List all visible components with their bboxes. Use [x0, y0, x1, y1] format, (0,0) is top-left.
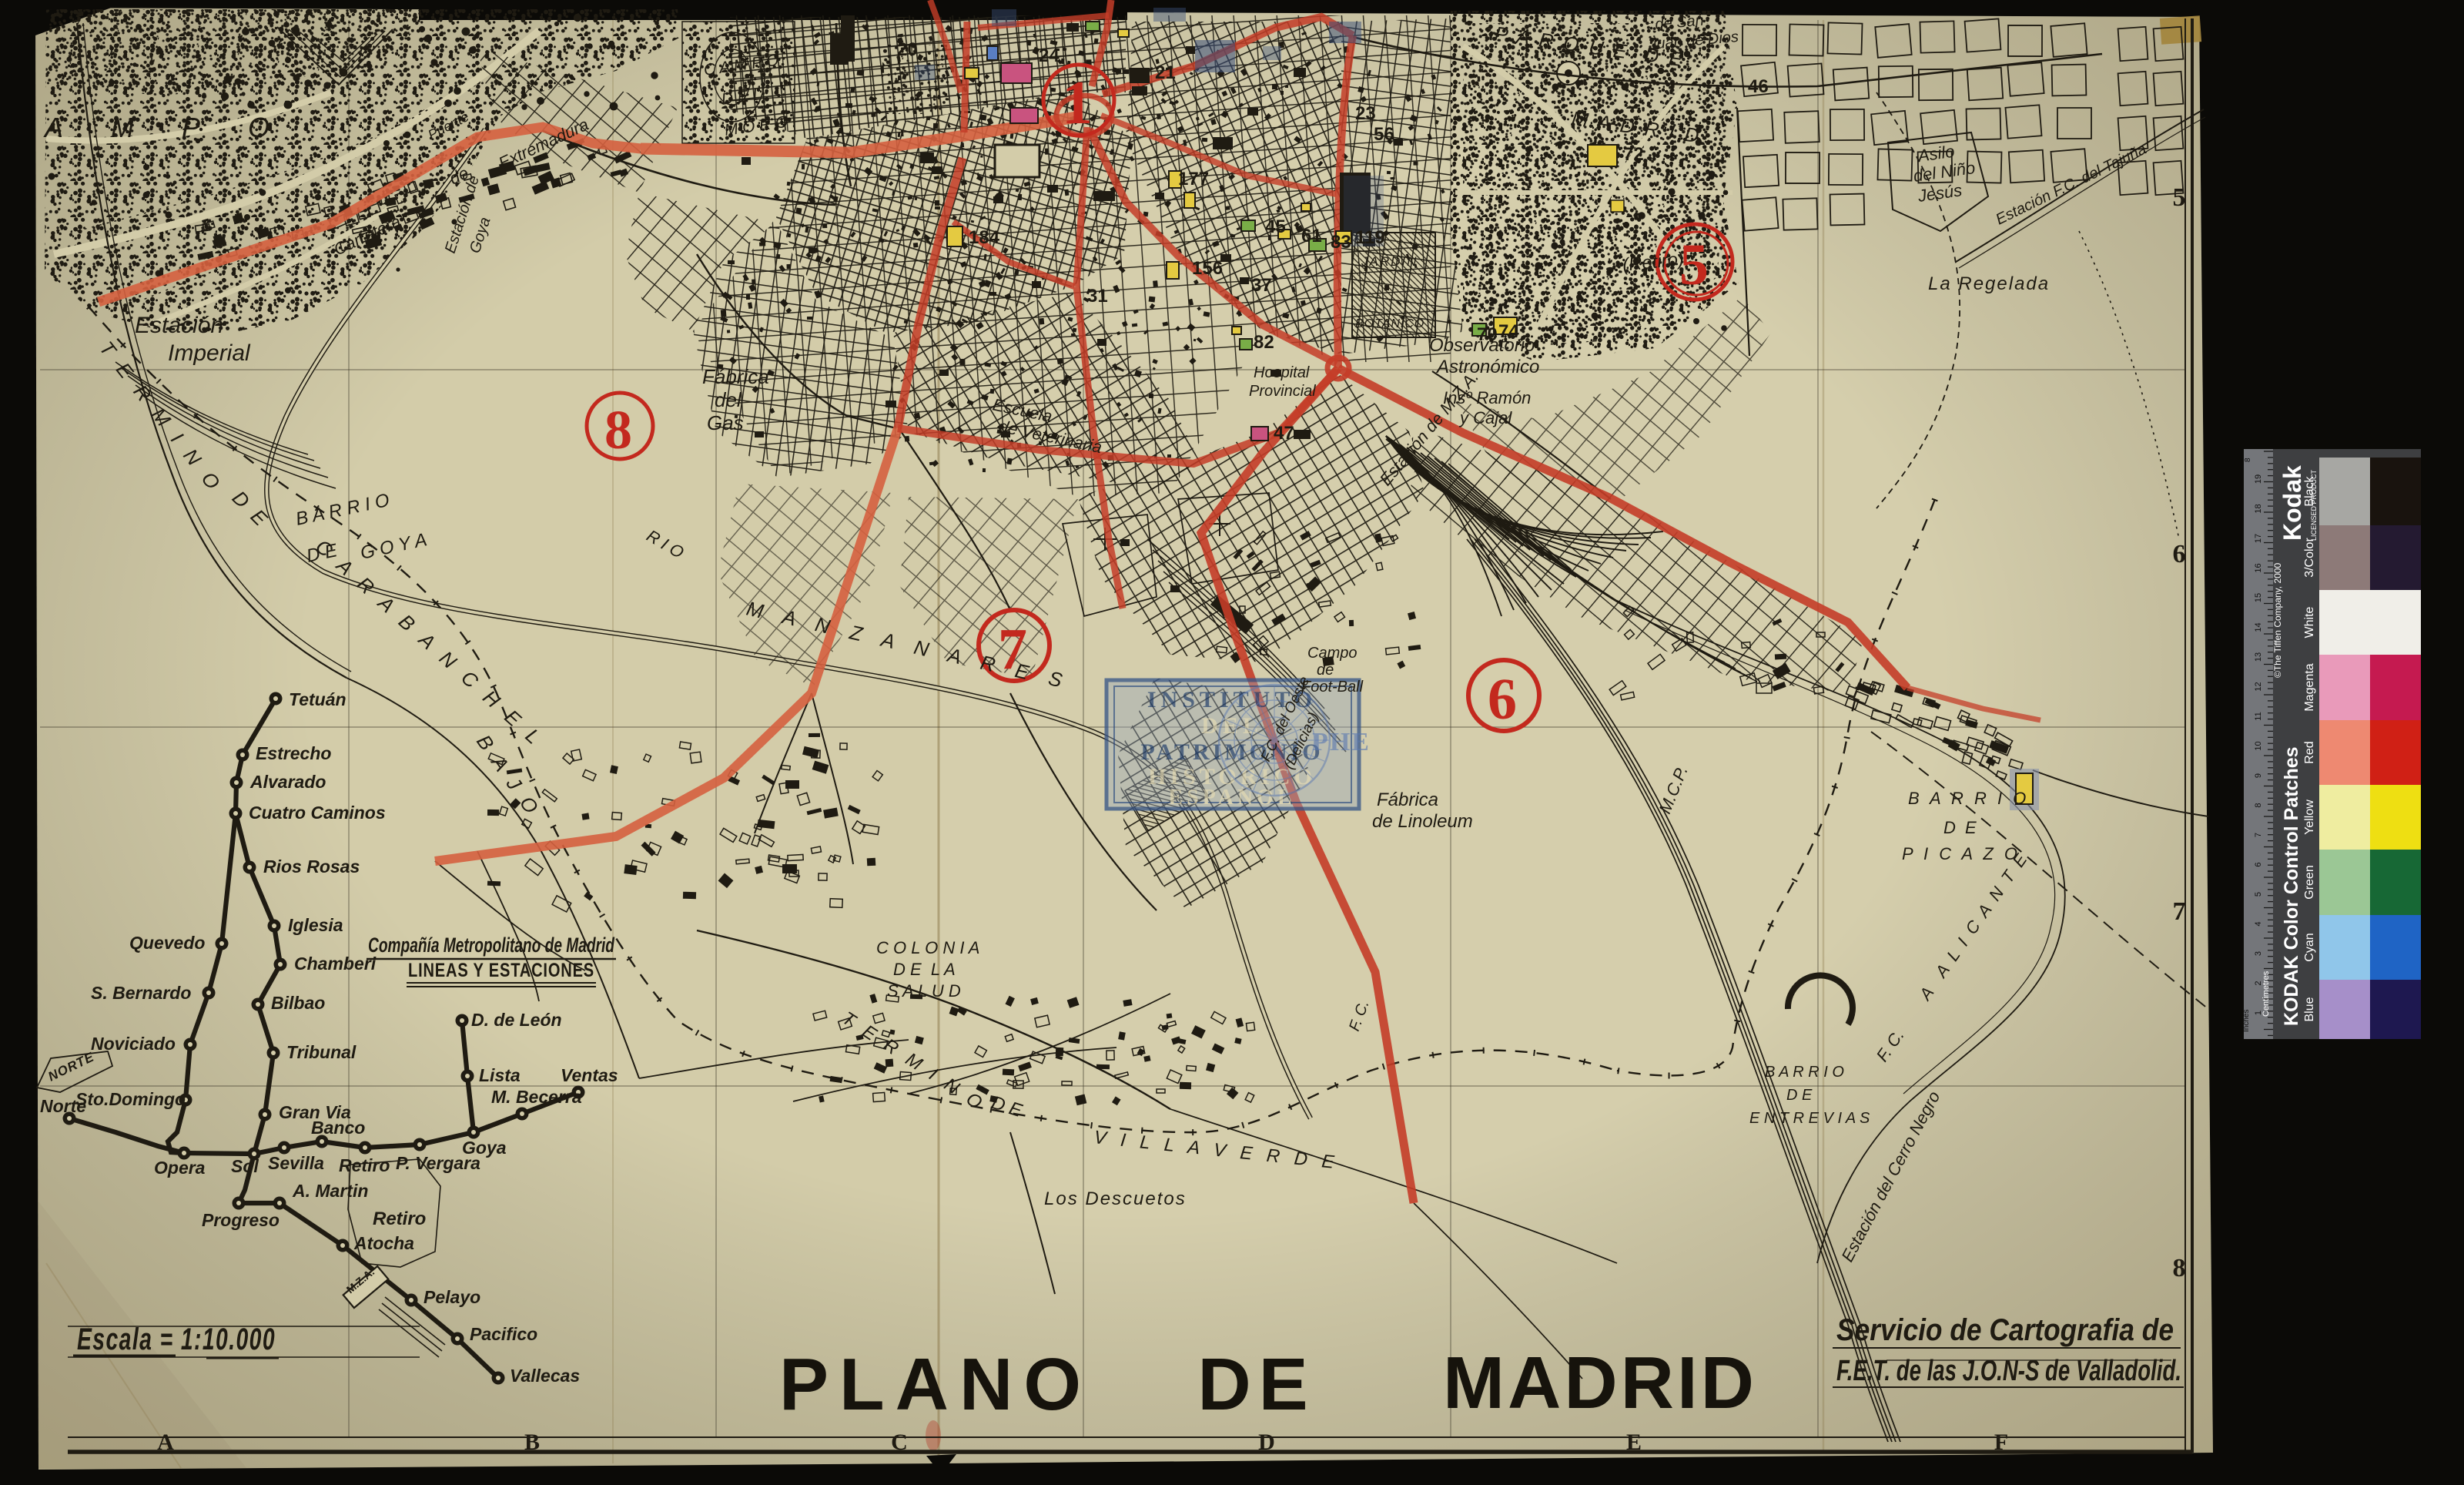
svg-text:de: de	[1317, 662, 1334, 679]
svg-text:D E: D E	[1786, 1087, 1813, 1104]
svg-text:20: 20	[897, 39, 918, 60]
svg-text:Yellow: Yellow	[2303, 799, 2316, 835]
svg-text:6: 6	[1488, 667, 1517, 732]
svg-text:47: 47	[1274, 423, 1294, 444]
svg-text:10: 10	[2254, 741, 2263, 750]
svg-text:83: 83	[1331, 232, 1351, 253]
svg-text:31: 31	[1087, 286, 1108, 307]
svg-text:Cuatro Caminos: Cuatro Caminos	[249, 803, 386, 823]
svg-text:Escala = 1:10.000: Escala = 1:10.000	[77, 1322, 276, 1356]
svg-text:Goya: Goya	[462, 1138, 507, 1158]
svg-text:Sevilla: Sevilla	[268, 1153, 324, 1173]
svg-text:Iglesia: Iglesia	[288, 915, 343, 935]
svg-text:B A R R I O: B A R R I O	[1765, 1064, 1844, 1081]
svg-text:5: 5	[2254, 892, 2263, 897]
svg-text:Astronómico: Astronómico	[1435, 357, 1539, 377]
svg-text:Banco: Banco	[311, 1118, 365, 1138]
svg-text:Kodak: Kodak	[2278, 465, 2306, 541]
svg-text:Norte: Norte	[40, 1096, 86, 1116]
svg-text:Estrecho: Estrecho	[256, 743, 331, 763]
svg-text:Chamberi: Chamberi	[294, 954, 377, 974]
svg-text:D E L A: D E L A	[893, 960, 956, 979]
svg-text:Fábrica: Fábrica	[1377, 789, 1438, 810]
svg-text:3/Color: 3/Color	[2303, 538, 2316, 578]
svg-text:C: C	[891, 1430, 908, 1455]
svg-text:A. Martin: A. Martin	[292, 1181, 368, 1201]
svg-text:DEL: DEL	[1201, 713, 1263, 739]
svg-text:Estación: Estación	[135, 313, 223, 338]
svg-text:Pacifico: Pacifico	[470, 1324, 537, 1344]
svg-text:A: A	[157, 1430, 174, 1455]
svg-text:Green: Green	[2303, 865, 2316, 899]
svg-text:Compañía Metropolitano de Madr: Compañía Metropolitano de Madrid	[368, 934, 614, 957]
svg-text:Hospital: Hospital	[1254, 364, 1310, 381]
svg-text:56: 56	[1374, 124, 1394, 145]
svg-text:Sto.Domingo: Sto.Domingo	[75, 1089, 186, 1109]
svg-text:Servicio de Cartografia de: Servicio de Cartografia de	[1836, 1313, 2174, 1347]
svg-text:DE: DE	[1197, 1343, 1315, 1426]
svg-text:Pelayo: Pelayo	[423, 1287, 480, 1307]
svg-text:Noviciado: Noviciado	[91, 1034, 176, 1054]
svg-text:PHE: PHE	[1312, 728, 1371, 756]
svg-text:Quevedo: Quevedo	[129, 933, 205, 953]
svg-text:Gas: Gas	[707, 411, 744, 434]
svg-text:C O L O N I A: C O L O N I A	[876, 938, 979, 957]
svg-text:Alvarado: Alvarado	[249, 772, 326, 792]
svg-text:12: 12	[2254, 682, 2263, 691]
svg-text:D E: D E	[1943, 818, 1979, 837]
svg-text:24: 24	[1039, 45, 1060, 66]
svg-text:KODAK Color Control Patches: KODAK Color Control Patches	[2281, 746, 2302, 1026]
svg-text:E: E	[1626, 1430, 1642, 1455]
svg-text:23: 23	[1355, 103, 1376, 124]
svg-text:D: D	[1258, 1430, 1275, 1455]
svg-text:ESPAÑOL: ESPAÑOL	[1168, 786, 1295, 810]
svg-text:16: 16	[2254, 563, 2263, 572]
svg-text:LINEAS Y ESTACIONES: LINEAS Y ESTACIONES	[408, 960, 594, 981]
svg-text:184: 184	[969, 227, 1000, 248]
svg-text:Provincial: Provincial	[1249, 383, 1316, 400]
svg-text:3: 3	[2254, 951, 2263, 956]
svg-text:8: 8	[2173, 1254, 2186, 1282]
svg-text:Inches: Inches	[2242, 1010, 2251, 1032]
svg-text:8: 8	[604, 399, 632, 461]
svg-text:Opera: Opera	[154, 1158, 206, 1178]
svg-text:Bilbao: Bilbao	[271, 993, 325, 1013]
svg-text:S. Bernardo: S. Bernardo	[91, 983, 191, 1003]
svg-text:7: 7	[2254, 833, 2263, 837]
svg-text:Ventas: Ventas	[561, 1065, 618, 1085]
svg-text:La Regelada: La Regelada	[1928, 273, 2050, 294]
svg-text:Vallecas: Vallecas	[510, 1366, 580, 1386]
svg-text:Tribunal: Tribunal	[286, 1042, 357, 1062]
svg-text:8: 8	[2254, 803, 2263, 807]
svg-text:Red: Red	[2303, 741, 2316, 763]
svg-text:156: 156	[1192, 258, 1223, 279]
svg-text:de Linoleum: de Linoleum	[1372, 811, 1473, 832]
svg-text:15: 15	[2254, 593, 2263, 602]
svg-text:M. Becerra: M. Becerra	[491, 1087, 582, 1107]
svg-text:6: 6	[2254, 862, 2263, 867]
svg-text:46: 46	[1748, 76, 1769, 97]
svg-text:©The Tiffen Company, 2000: ©The Tiffen Company, 2000	[2272, 563, 2283, 678]
svg-text:Retiro: Retiro	[373, 1208, 426, 1229]
svg-text:19: 19	[2254, 474, 2263, 484]
svg-text:Fábrica: Fábrica	[702, 365, 769, 388]
svg-text:White: White	[2303, 606, 2316, 638]
svg-text:MADRID: MADRID	[1443, 1342, 1757, 1424]
svg-text:Magenta: Magenta	[2303, 663, 2316, 711]
svg-text:45: 45	[1265, 216, 1286, 237]
svg-text:4: 4	[2254, 921, 2263, 926]
svg-text:21: 21	[1155, 62, 1176, 83]
svg-text:Campo: Campo	[1307, 645, 1357, 662]
svg-text:Tetuán: Tetuán	[289, 689, 346, 709]
svg-text:7: 7	[2173, 897, 2186, 926]
svg-text:y Cajal: y Cajal	[1458, 408, 1512, 427]
svg-text:11: 11	[2254, 712, 2263, 720]
svg-text:119: 119	[1355, 227, 1385, 248]
svg-text:Atocha: Atocha	[353, 1233, 414, 1253]
svg-text:6: 6	[2173, 540, 2186, 568]
svg-text:Observatorio: Observatorio	[1429, 335, 1535, 356]
svg-text:F.E.T. de las J.O.N-S de Valla: F.E.T. de las J.O.N-S de Valladolid.	[1836, 1355, 2181, 1387]
svg-text:72: 72	[1623, 144, 1644, 165]
svg-text:Cyan: Cyan	[2303, 933, 2316, 961]
svg-text:PLANO: PLANO	[779, 1343, 1092, 1426]
svg-text:E N T R E V I A S: E N T R E V I A S	[1749, 1110, 1870, 1127]
svg-text:S A L U D: S A L U D	[887, 981, 961, 1001]
svg-text:D. de León: D. de León	[471, 1010, 562, 1030]
svg-text:Progreso: Progreso	[202, 1210, 280, 1230]
svg-text:18: 18	[2254, 504, 2263, 513]
svg-text:Los Descuetos: Los Descuetos	[1044, 1188, 1187, 1209]
svg-text:Rios Rosas: Rios Rosas	[263, 856, 360, 877]
svg-text:Blue: Blue	[2303, 997, 2316, 1021]
svg-text:9: 9	[2254, 773, 2263, 778]
svg-text:B: B	[524, 1430, 540, 1455]
svg-text:37: 37	[1251, 275, 1272, 296]
svg-text:F: F	[1994, 1430, 2008, 1455]
svg-text:Sol: Sol	[231, 1156, 259, 1176]
svg-text:177: 177	[1178, 169, 1209, 189]
svg-text:del: del	[715, 388, 742, 411]
svg-text:14: 14	[2254, 622, 2263, 632]
svg-text:82: 82	[1254, 332, 1274, 353]
svg-text:Centimetres: Centimetres	[2261, 970, 2271, 1017]
svg-text:Lista: Lista	[479, 1065, 521, 1085]
svg-text:5: 5	[2173, 183, 2186, 212]
svg-text:P I C A Z O: P I C A Z O	[1902, 844, 2020, 863]
svg-text:Retiro: Retiro	[339, 1155, 390, 1175]
svg-text:61: 61	[1301, 226, 1322, 246]
svg-text:8: 8	[2244, 458, 2252, 462]
svg-text:Black: Black	[2303, 475, 2316, 506]
svg-text:1: 1	[1062, 69, 1093, 137]
svg-text:13: 13	[2254, 652, 2263, 662]
svg-text:Imperial: Imperial	[168, 340, 251, 366]
svg-text:A M P O: A M P O	[43, 112, 280, 143]
svg-text:B A R R I O: B A R R I O	[1908, 789, 2029, 808]
svg-text:17: 17	[2254, 534, 2263, 543]
